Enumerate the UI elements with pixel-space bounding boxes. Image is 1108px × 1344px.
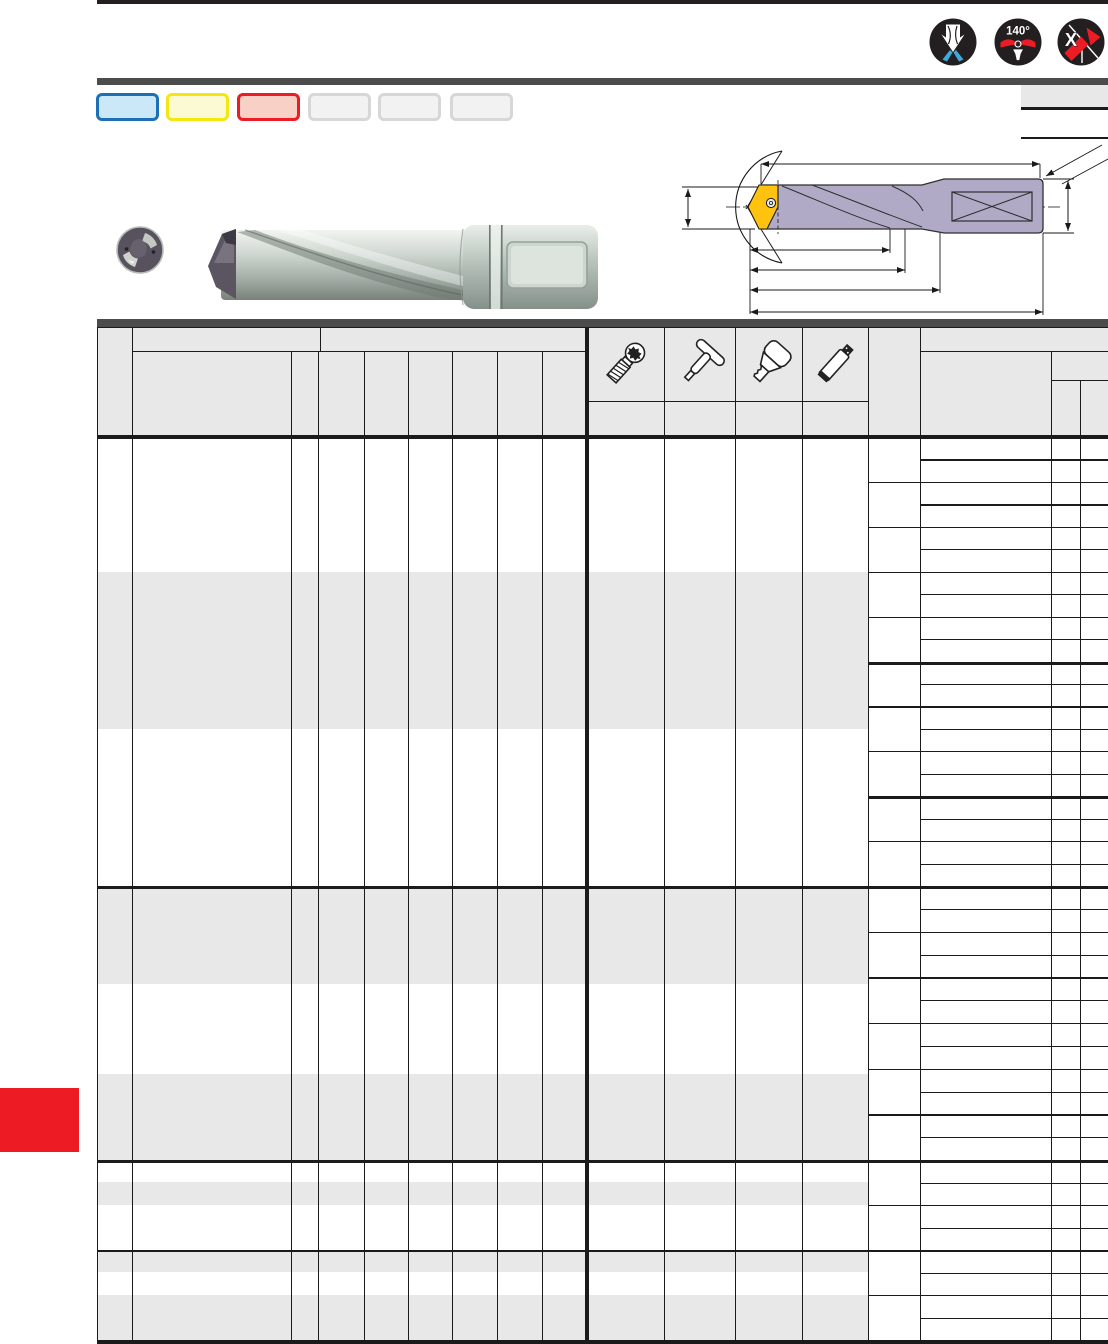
page-info-box [1021,85,1108,107]
table-section-bar [97,319,1108,327]
grid-line [585,327,589,1343]
grid-line [452,351,453,1341]
grid-line [802,327,803,1341]
lubricant-paste-icon [807,336,863,392]
grid-line [868,977,1108,978]
grid-line [97,1250,1108,1252]
grid-line [364,351,365,1341]
top-black-bar [97,0,1108,4]
grid-line [868,1114,1108,1115]
grid-line [132,351,586,352]
grid-line [735,327,736,1341]
grid-line [97,435,1108,439]
grid-line [585,401,868,402]
red-page-tab [0,1088,79,1152]
grid-line [868,796,1108,799]
svg-text:X: X [1065,30,1077,50]
point-angle-icon: 140° [994,18,1042,66]
grid-line [97,1340,1108,1344]
grid-line [868,1023,1108,1024]
x-geometry-icon: X [1057,18,1105,66]
grid-line [868,1205,1108,1206]
legend-chip-gray-3 [450,93,513,121]
grid-line [868,572,1108,573]
zebra-stripe [97,1295,868,1340]
legend-chip-gray-1 [308,93,371,121]
grid-line [318,351,319,1341]
grid-line [97,327,98,1343]
page-info-rule-1 [1021,107,1108,110]
grid-line [868,327,869,1341]
legend-chip-blue [96,93,159,121]
legend-chip-red [237,93,300,121]
zebra-stripe [97,572,868,729]
grid-line [868,482,1108,483]
zebra-stripe [97,1074,868,1160]
grid-line [97,886,1108,889]
legend-chip-gray-2 [378,93,441,121]
grid-line [291,351,292,1341]
grid-line [542,351,543,1341]
grid-line [868,662,1108,665]
grid-line [868,527,1108,528]
grid-line [868,932,1108,933]
header-gray-bar [97,78,1108,85]
grid-line [497,351,498,1341]
grid-line [1051,351,1052,1341]
grid-line [1080,380,1081,1341]
page-info-rule-2 [1021,137,1108,139]
grid-line [920,327,921,1341]
grid-line [97,1160,1108,1163]
zebra-stripe [97,886,868,984]
grid-line [868,1295,1108,1296]
grid-line [920,351,1108,352]
grid-line [868,841,1108,842]
technical-drawing [660,140,1108,320]
zebra-stripe [97,1182,868,1205]
grid-line [868,751,1108,752]
grid-line [132,327,133,1341]
zebra-stripe [97,1250,868,1272]
clamping-screw-icon [597,336,653,392]
svg-text:140°: 140° [1006,26,1030,38]
grid-line [868,617,1108,618]
drill-side-photo [205,221,600,313]
drill-face-photo [116,226,164,274]
grid-line [868,1069,1108,1070]
torx-key-icon [672,336,728,392]
grid-line [320,327,321,352]
legend-chip-yellow [166,93,229,121]
internal-coolant-icon [929,18,977,66]
grid-line [97,327,1108,328]
grid-line [408,351,409,1341]
grid-line [868,706,1108,707]
insert-key-icon [741,336,797,392]
grid-line [664,327,665,1341]
